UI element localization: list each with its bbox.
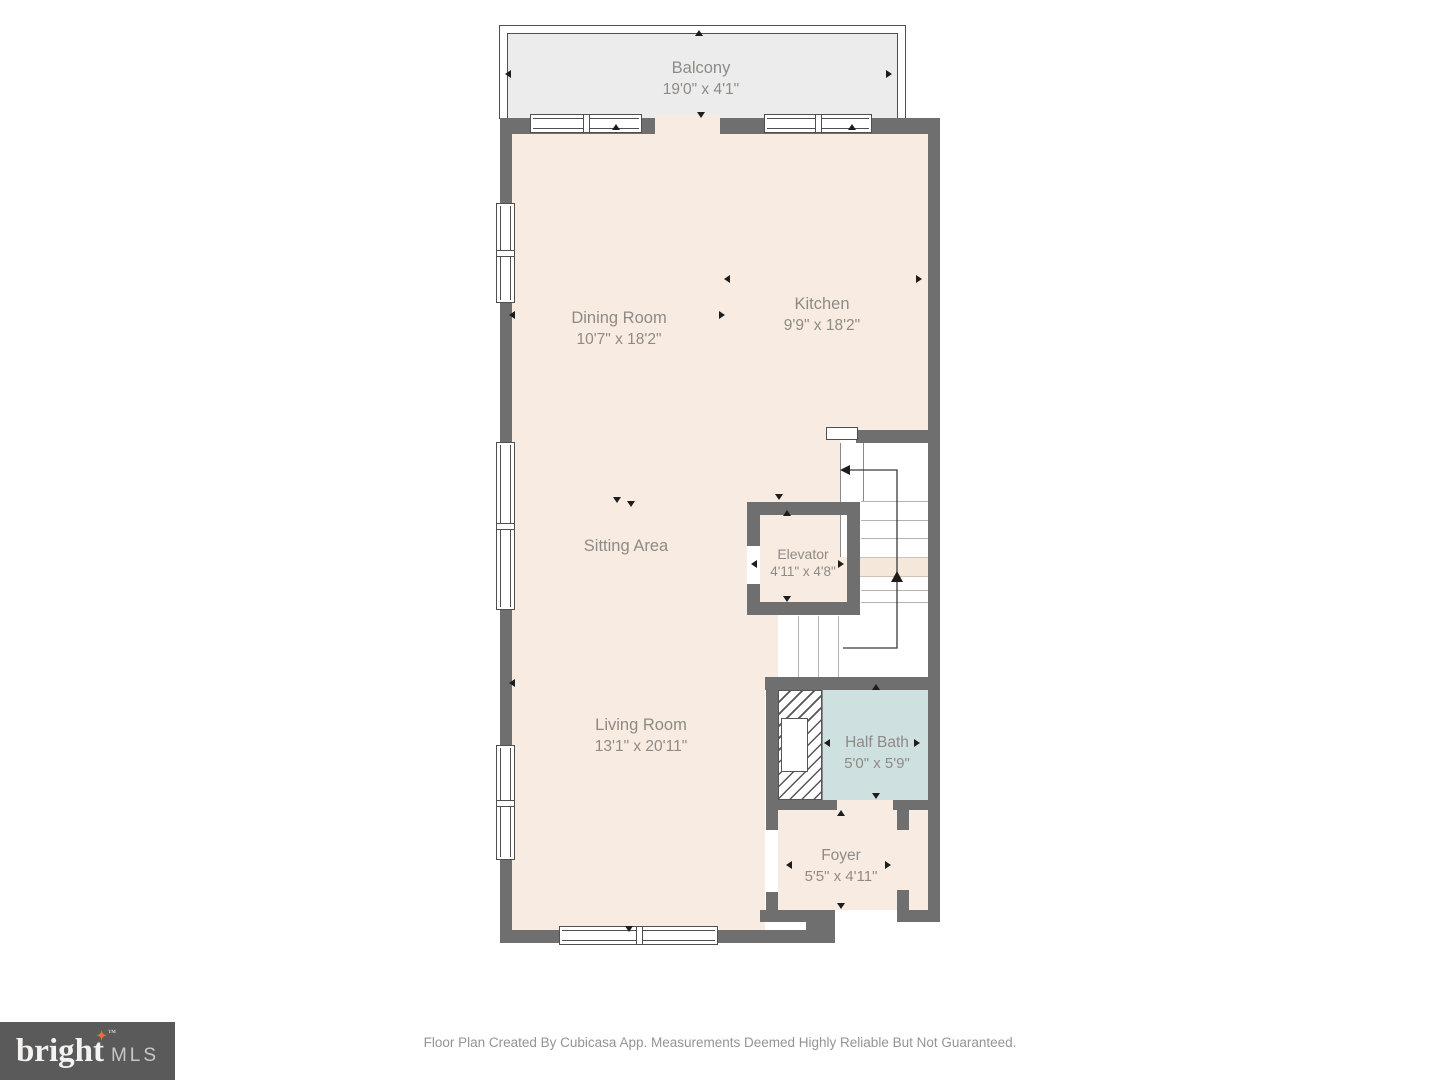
room-name: Foyer: [741, 845, 941, 866]
measure-arrow-up-icon: [837, 810, 845, 816]
room-name: Half Bath: [797, 732, 957, 753]
window-top-left: [530, 114, 642, 133]
wall-foyer-stub-left-bottom: [766, 892, 778, 912]
window-left-lower: [496, 745, 515, 860]
floor-sitting: [512, 502, 747, 615]
wall-elevator-left-lower: [747, 584, 760, 615]
measure-arrow-up-icon: [848, 124, 856, 130]
logo-mls-text: MLS: [111, 1045, 159, 1067]
wall-foyer-stub-right-bottom: [897, 890, 909, 922]
halfbath-door-opening: [837, 800, 893, 810]
room-label-balcony: Balcony 19'0" x 4'1": [601, 58, 801, 100]
balcony-door-opening: [655, 115, 720, 134]
room-dims: 5'0" x 5'9": [797, 753, 957, 774]
measure-arrow-right-icon: [916, 275, 922, 283]
window-bottom: [559, 926, 718, 945]
room-label-foyer: Foyer 5'5" x 4'11": [741, 845, 941, 887]
measure-arrow-down-icon: [613, 497, 621, 503]
room-name: Dining Room: [519, 308, 719, 329]
floor-dining-kitchen: [512, 131, 928, 432]
room-name: Sitting Area: [526, 536, 726, 557]
measure-arrow-left-icon: [751, 560, 757, 568]
measure-arrow-down-icon: [872, 793, 880, 799]
measure-arrow-right-icon: [914, 739, 920, 747]
room-label-living: Living Room 13'1" x 20'11": [541, 715, 741, 757]
star-icon: ✦: [96, 1029, 107, 1042]
floor-plan-page: Balcony 19'0" x 4'1": [0, 0, 1440, 1080]
measure-arrow-down-icon: [837, 903, 845, 909]
room-label-sitting: Sitting Area: [526, 536, 726, 557]
room-dims: 13'1" x 20'11": [541, 736, 741, 757]
logo-wordmark: bright: [16, 1033, 104, 1069]
footer-disclaimer: Floor Plan Created By Cubicasa App. Meas…: [0, 1035, 1440, 1050]
stair-direction-arrow-icon: [760, 440, 940, 690]
wall-halfbath-bottom-right: [893, 800, 928, 810]
room-dims: 5'5" x 4'11": [741, 866, 941, 887]
measure-arrow-up-icon: [612, 124, 620, 130]
measure-arrow-left-icon: [724, 275, 730, 283]
measure-arrow-down-icon: [627, 501, 635, 507]
measure-arrow-down-icon: [697, 112, 705, 118]
measure-arrow-left-icon: [824, 739, 830, 747]
measure-arrow-right-icon: [886, 70, 892, 78]
room-label-kitchen: Kitchen 9'9" x 18'2": [722, 294, 922, 336]
measure-arrow-right-icon: [719, 311, 725, 319]
room-name: Living Room: [541, 715, 741, 736]
logo-bright-text: bright ✦ ™: [16, 1035, 104, 1068]
room-dims: 19'0" x 4'1": [601, 79, 801, 100]
wall-foyer-stub-right-top: [897, 810, 909, 830]
measure-arrow-left-icon: [509, 679, 515, 687]
bright-mls-logo: bright ✦ ™ MLS: [0, 1022, 175, 1080]
measure-arrow-up-icon: [695, 30, 703, 36]
measure-arrow-left-icon: [505, 70, 511, 78]
measure-arrow-left-icon: [786, 861, 792, 869]
measure-arrow-down-icon: [625, 926, 633, 932]
measure-arrow-left-icon: [509, 311, 515, 319]
room-dims: 10'7" x 18'2": [519, 329, 719, 350]
floor-living-upper: [512, 615, 778, 677]
measure-arrow-right-icon: [885, 861, 891, 869]
stair-top-door: [826, 427, 858, 440]
wall-elevator-left-upper: [747, 502, 760, 546]
room-name: Kitchen: [722, 294, 922, 315]
wall-halfbath-bottom-left: [766, 800, 837, 810]
window-left-middle: [496, 442, 515, 610]
trademark-symbol: ™: [108, 1029, 116, 1037]
room-label-halfbath: Half Bath 5'0" x 5'9": [797, 732, 957, 774]
room-dims: 9'9" x 18'2": [722, 315, 922, 336]
window-left-upper: [496, 203, 515, 303]
wall-foyer-stub-left-top: [766, 810, 778, 830]
room-name: Balcony: [601, 58, 801, 79]
wall-living-foyer-divider: [766, 677, 778, 810]
room-label-dining: Dining Room 10'7" x 18'2": [519, 308, 719, 350]
